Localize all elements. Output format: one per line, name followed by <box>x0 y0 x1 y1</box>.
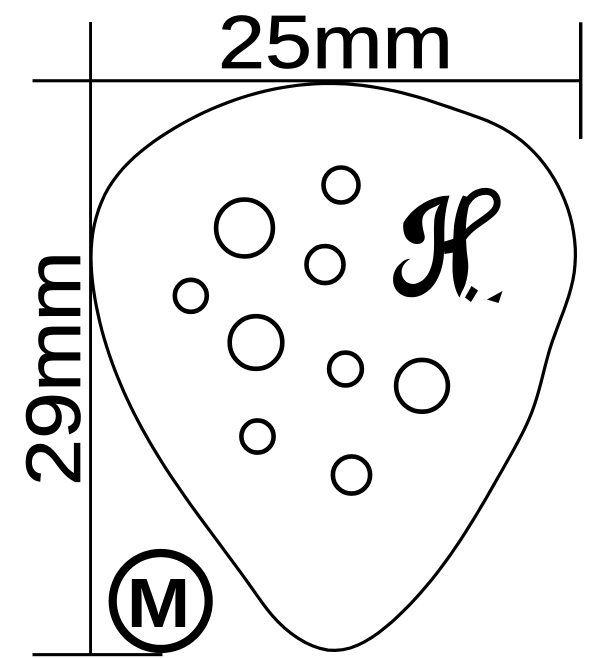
svg-text:25mm: 25mm <box>218 0 453 84</box>
svg-text:M: M <box>127 564 191 642</box>
svg-text:29mm: 29mm <box>11 251 97 486</box>
